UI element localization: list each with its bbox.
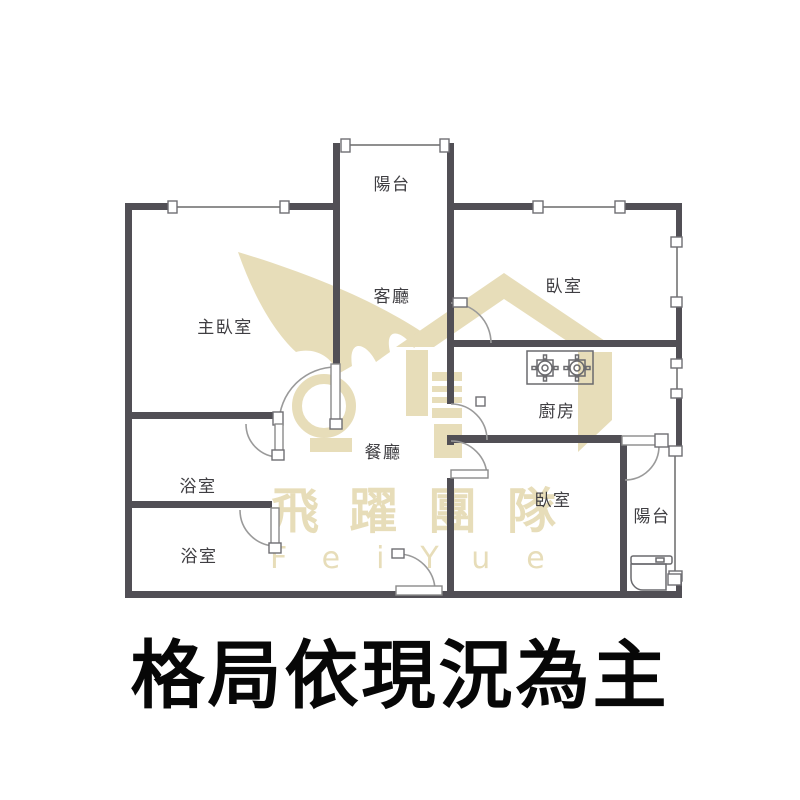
logo-circle — [297, 379, 351, 433]
caption-text: 格局依現況為主 — [0, 616, 800, 723]
room-label-bathroom-upper: 浴室 — [180, 477, 217, 497]
room-label-bedroom-bottom-right: 臥室 — [535, 491, 572, 511]
door-arc — [625, 446, 659, 480]
floor-plan-page: 飛躍團隊 FeiYue — [0, 0, 800, 800]
room-label-master-bedroom: 主臥室 — [197, 318, 253, 338]
watermark-brand-latin: FeiYue — [270, 541, 581, 576]
room-label-kitchen: 廚房 — [539, 401, 576, 422]
burner-icon — [532, 355, 558, 381]
room-label-bedroom-top-right: 臥室 — [546, 277, 583, 297]
room-label-balcony-bottom: 陽台 — [634, 507, 671, 527]
logo-stem — [406, 350, 428, 416]
room-label-bathroom-lower: 浴室 — [181, 547, 218, 567]
room-label-dining-room: 餐廳 — [365, 443, 402, 463]
room-label-living-room: 客廳 — [374, 287, 411, 307]
room-label-balcony-top: 陽台 — [374, 175, 411, 195]
logo-foot — [310, 438, 352, 452]
